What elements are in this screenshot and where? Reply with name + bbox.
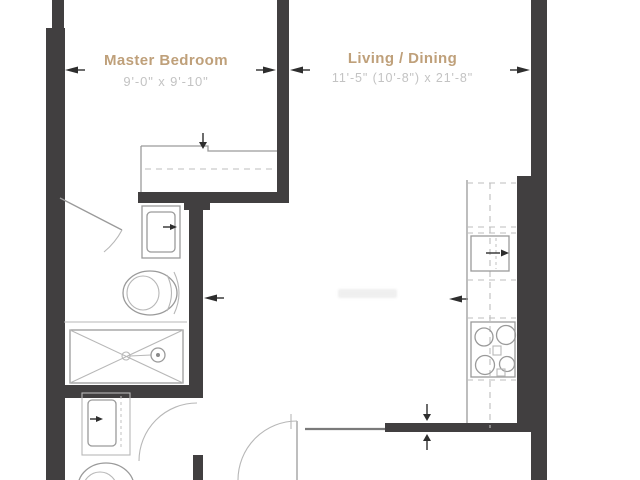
toilet-tank-line xyxy=(167,275,172,311)
vanity-sink-basin xyxy=(147,212,175,252)
shower-drain-link xyxy=(130,355,151,356)
bath2-door-stub xyxy=(193,455,203,480)
vanity-sink-basin xyxy=(88,400,116,446)
dim-arrow-left-icon xyxy=(204,295,217,302)
faucet-arrow-icon xyxy=(96,416,103,422)
corridor-dim-arrows xyxy=(204,295,468,303)
closet-front-line xyxy=(141,146,277,151)
right-wall xyxy=(531,0,547,480)
door-swing-arc xyxy=(104,230,122,252)
kitchen xyxy=(467,180,516,428)
toilet-outline xyxy=(78,463,134,480)
door-swing-arc xyxy=(238,421,297,480)
bedroom-living-wall xyxy=(277,0,289,192)
range-control xyxy=(493,346,501,355)
room-dimensions-master-bedroom: 9'-0" x 9'-10" xyxy=(46,74,286,89)
ensuite-bathroom xyxy=(60,198,187,383)
sink-arrow-icon xyxy=(501,250,509,257)
dim-arrow-right-icon xyxy=(517,67,530,74)
second-bathroom xyxy=(78,393,197,480)
burner-icon xyxy=(476,356,495,375)
floorplan-canvas: Master Bedroom 9'-0" x 9'-10" Living / D… xyxy=(0,0,640,480)
left-wall-top xyxy=(52,0,64,30)
shower-drain-dot xyxy=(156,353,160,357)
dim-arrow-down-icon xyxy=(423,414,431,421)
dim-arrow-up-icon xyxy=(423,434,431,441)
room-label-living-dining: Living / Dining xyxy=(295,50,510,67)
closet-bottom-wall xyxy=(138,192,289,203)
toilet-bowl xyxy=(83,472,117,480)
bedroom-closet xyxy=(141,133,277,192)
room-label-master-bedroom: Master Bedroom xyxy=(46,52,286,69)
kitchen-wall xyxy=(517,176,531,432)
bathroom-right-wall xyxy=(189,203,203,398)
door-leaf xyxy=(60,198,122,230)
range-control xyxy=(497,369,505,376)
room-dimensions-living-dining: 11'-5" (10'-8") x 21'-8" xyxy=(295,71,510,85)
toilet-bowl xyxy=(127,276,159,310)
faucet-arrow-icon xyxy=(170,224,177,230)
faint-print-artifact xyxy=(338,289,397,298)
left-wall xyxy=(46,28,65,480)
door-swing-arc xyxy=(139,403,197,461)
shower-bottom-wall xyxy=(64,385,190,398)
bottom-wall xyxy=(385,423,517,432)
dim-arrow-counter-icon xyxy=(449,296,462,303)
burner-icon xyxy=(497,326,516,345)
entry xyxy=(238,414,385,480)
